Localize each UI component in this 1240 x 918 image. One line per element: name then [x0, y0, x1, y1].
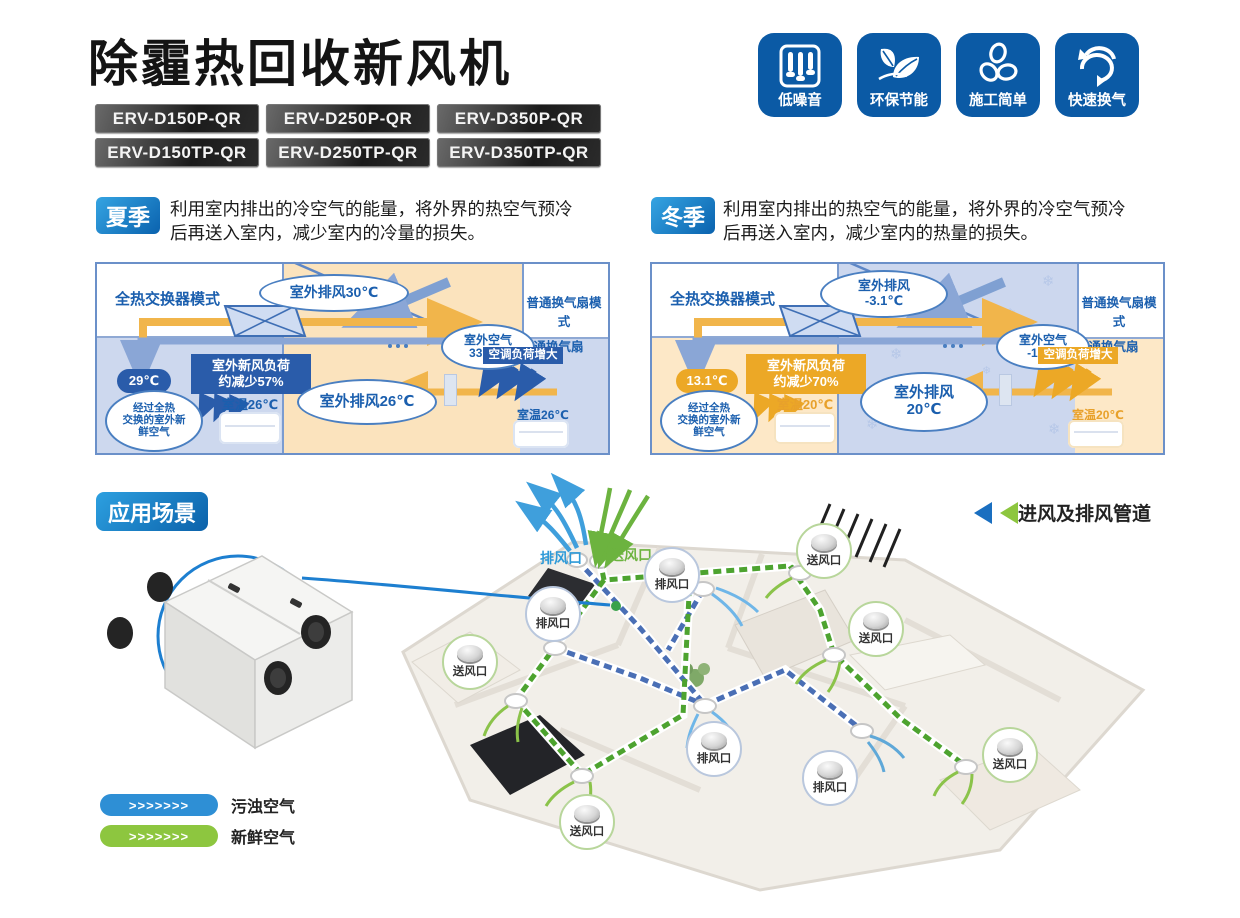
- vent-disc-icon: [540, 597, 566, 614]
- vent-disc-icon: [817, 761, 843, 778]
- dirty-air-pill: >>>>>>>: [100, 794, 218, 816]
- vent-bubble-exhaust: 排风口: [525, 586, 581, 642]
- fresh-air-pill: >>>>>>>: [100, 825, 218, 847]
- vent-disc-icon: [574, 805, 600, 822]
- application-illustration: [0, 0, 1240, 918]
- vent-disc-icon: [863, 612, 889, 629]
- vent-bubble-supply: 送风口: [442, 634, 498, 690]
- vent-disc-icon: [811, 534, 837, 551]
- vent-bubble-supply: 送风口: [559, 794, 615, 850]
- vent-bubble-exhaust: 排风口: [644, 547, 700, 603]
- vent-bubble-supply: 送风口: [848, 601, 904, 657]
- vent-disc-icon: [997, 738, 1023, 755]
- brochure-page: 除霾热回收新风机 ERV-D150P-QR ERV-D250P-QR ERV-D…: [0, 0, 1240, 918]
- air-legend: >>>>>>> 污浊空气 >>>>>>> 新鲜空气: [100, 793, 295, 848]
- vent-disc-icon: [457, 645, 483, 662]
- legend-dirty-air: >>>>>>> 污浊空气: [100, 793, 295, 817]
- vent-label-supply: 送风口: [610, 545, 652, 565]
- vent-bubble-supply: 送风口: [982, 727, 1038, 783]
- erv-unit-product: [107, 556, 352, 748]
- vent-label-exhaust: 排风口: [540, 548, 582, 568]
- vent-bubble-exhaust: 排风口: [802, 750, 858, 806]
- vent-disc-icon: [701, 732, 727, 749]
- vent-bubble-exhaust: 排风口: [686, 721, 742, 777]
- vent-bubble-supply: 送风口: [796, 523, 852, 579]
- connector-endpoint-dot: [611, 601, 621, 611]
- legend-fresh-air: >>>>>>> 新鲜空气: [100, 824, 295, 848]
- house-footprint: [403, 542, 1143, 890]
- vent-disc-icon: [659, 558, 685, 575]
